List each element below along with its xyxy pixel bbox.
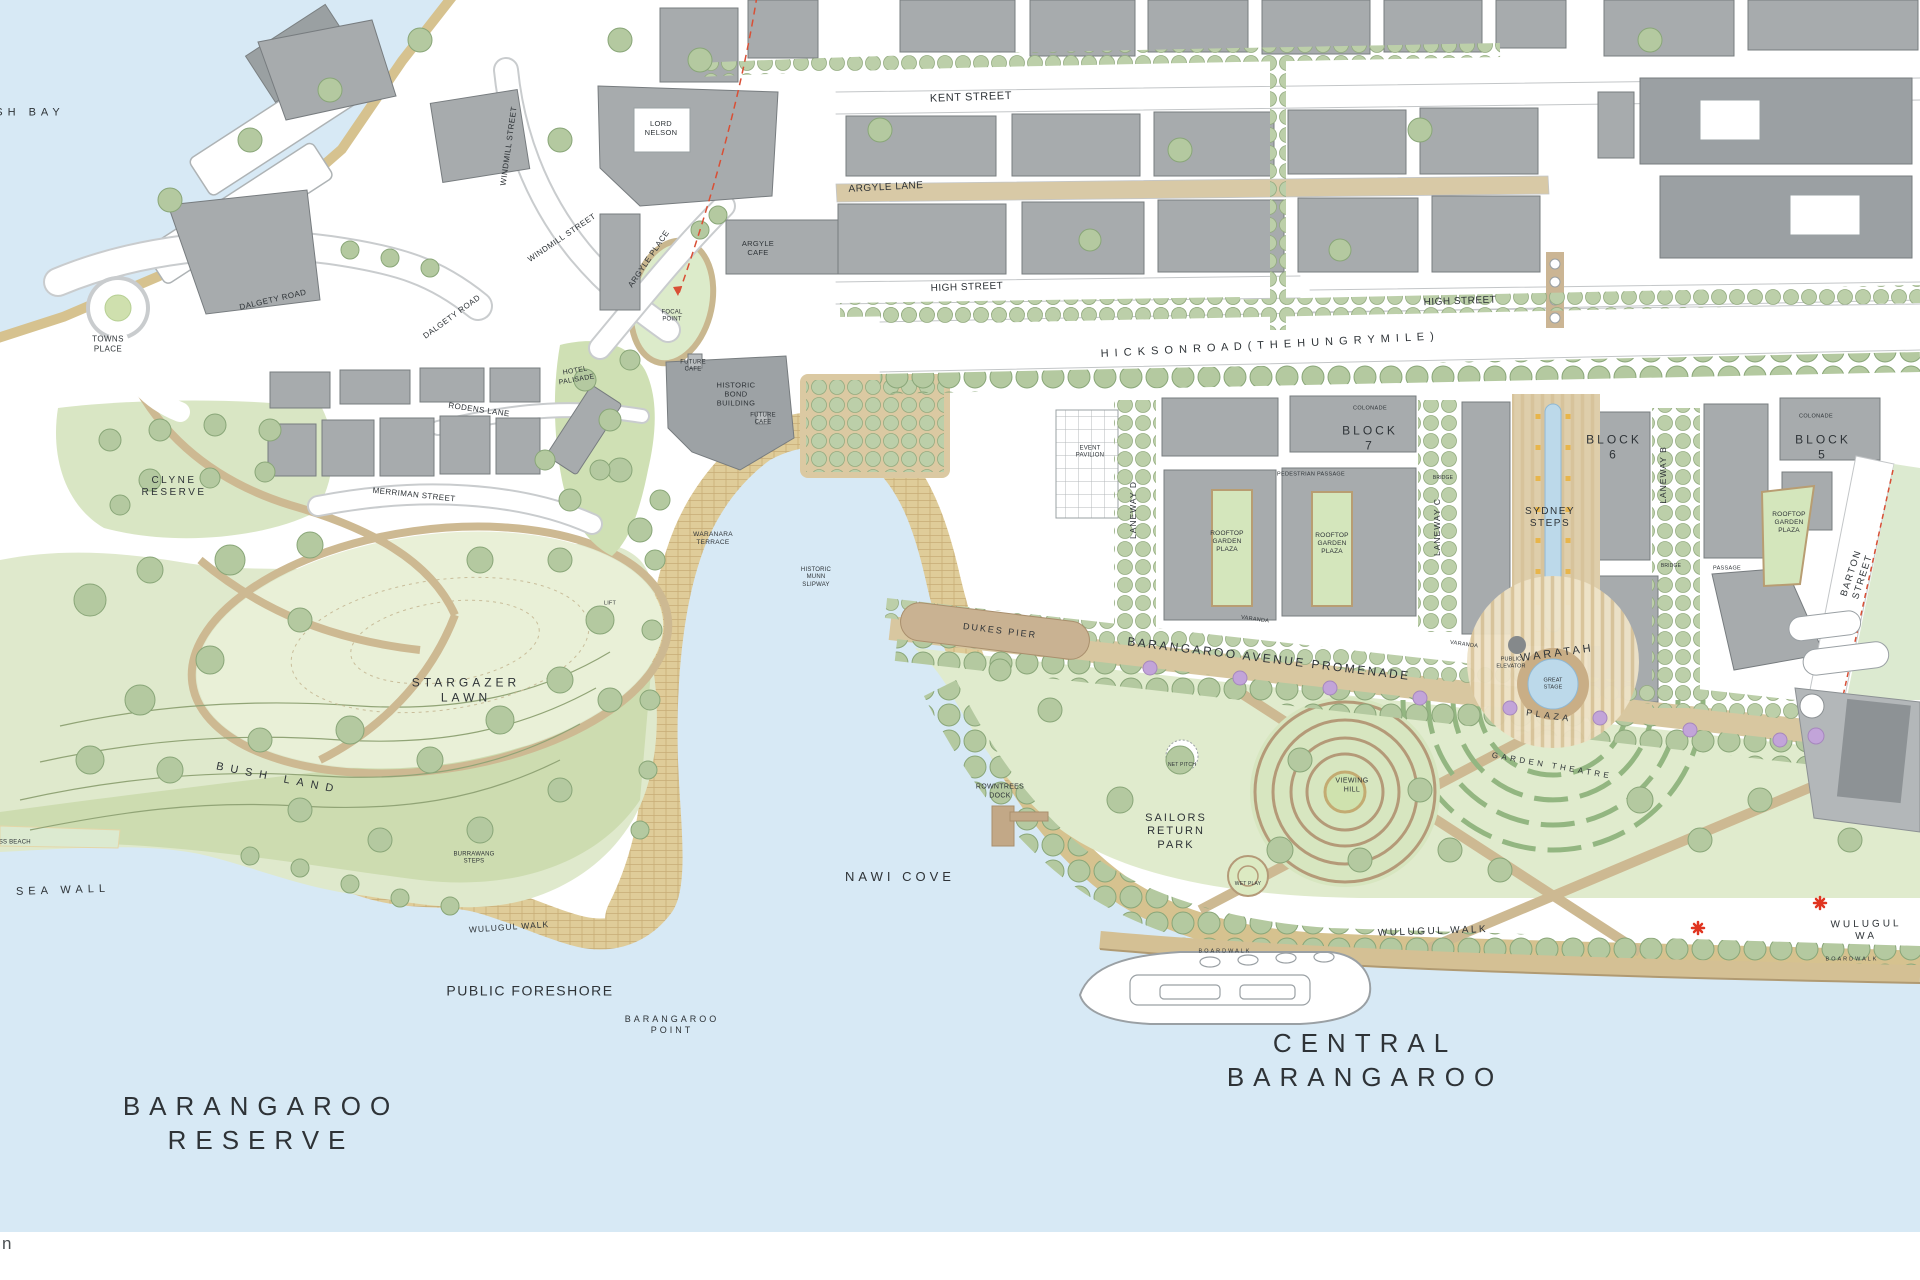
map-page: SH BAYTOWNS PLACEDALGETY ROADDALGETY ROA… — [0, 0, 1920, 1280]
map-canvas: SH BAYTOWNS PLACEDALGETY ROADDALGETY ROA… — [0, 0, 1920, 1232]
map-drawing — [0, 0, 1920, 1232]
footer-text: n — [2, 1234, 11, 1254]
page-footer: n — [0, 1232, 1920, 1280]
ship — [1080, 952, 1370, 1024]
waratah-plaza — [1467, 576, 1639, 748]
